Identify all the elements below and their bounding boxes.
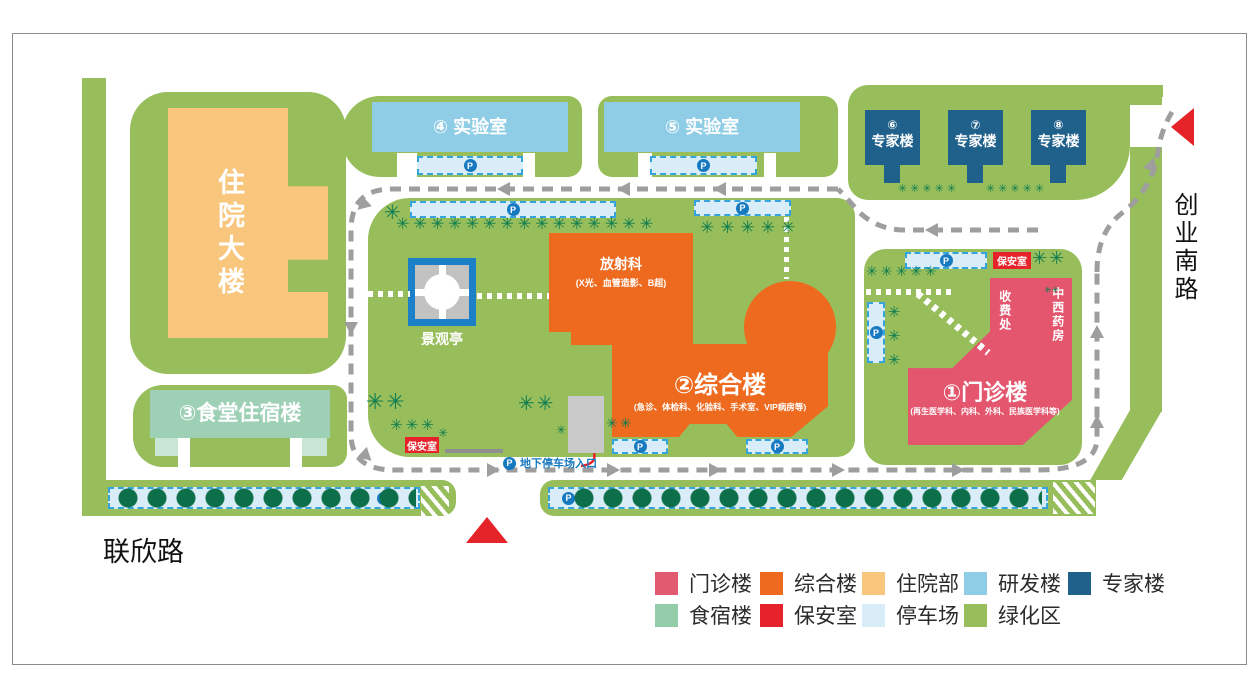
legend-item-security: 保安室: [760, 600, 857, 630]
legend-label: 综合楼: [794, 568, 857, 598]
underground-parking-entrance-label: P 地下停车场入口: [503, 455, 597, 471]
parking-strip-lab4: P: [417, 156, 523, 175]
palm-tree-row: ✳✳✳: [390, 418, 437, 433]
security-room-badge-south: 保安室: [405, 437, 439, 453]
canteen-leg-left: [155, 438, 178, 456]
parking-icon: P: [507, 203, 520, 216]
lab5-label: ⑤ 实验室: [604, 117, 800, 138]
comprehensive-label: ②综合楼: [620, 372, 820, 400]
palm-tree-row: ✳✳✳✳✳: [898, 184, 959, 195]
expert6-text: 专家楼: [865, 133, 920, 149]
legend-swatch: [655, 572, 678, 595]
comprehensive-sublabel: (急诊、体检科、化验科、手术室、VIP病房等): [620, 401, 820, 413]
parking-strip-central-bottomright: P: [746, 439, 808, 454]
legend-swatch: [862, 604, 885, 627]
legend-swatch: [655, 604, 678, 627]
legend-label: 保安室: [794, 600, 857, 630]
expert8-number: ⑧: [1031, 119, 1086, 133]
legend-swatch: [760, 604, 783, 627]
legend-item-outpatient: 门诊楼: [655, 568, 752, 598]
radiology-label: 放射科: [549, 256, 693, 272]
tree-row-south-right: [572, 486, 1042, 510]
expert6-label: ⑥ 专家楼: [865, 119, 920, 149]
outpatient-sublabel: (再生医学科、内科、外科、民族医学科等): [895, 406, 1075, 417]
expert7-number: ⑦: [948, 119, 1003, 133]
palm-tree-row: ✳✳✳✳✳: [986, 184, 1047, 195]
inpatient-label: 住院大楼: [213, 168, 244, 300]
south-entrance-arrow: [466, 517, 508, 543]
expert7-stem: [967, 165, 983, 183]
parking-icon: P: [771, 440, 784, 453]
legend-label: 食宿楼: [689, 600, 752, 630]
legend-swatch: [760, 572, 783, 595]
pavilion: [408, 258, 476, 326]
expert8-label: ⑧ 专家楼: [1031, 119, 1086, 149]
parking-strip-outpatient-left: P: [867, 302, 885, 363]
comprehensive-step: [571, 330, 693, 345]
legend-item-comprehensive: 综合楼: [760, 568, 857, 598]
underground-parking-ramp: [568, 396, 604, 453]
parking-icon: P: [736, 202, 749, 215]
palm-tree-row: ✳✳✳✳✳: [700, 219, 801, 236]
parking-icon: P: [870, 326, 883, 339]
expert8-text: 专家楼: [1031, 133, 1086, 149]
expert7-text: 专家楼: [948, 133, 1003, 149]
palm-tree-row: ✳✳: [366, 391, 407, 413]
palm-tree-row: ✳✳✳✳✳: [866, 264, 940, 278]
tree-row-south-left: [116, 486, 416, 510]
expert6-stem: [884, 165, 900, 183]
palm-tree-row: ✳✳: [1044, 286, 1059, 295]
curb-bar: [445, 449, 503, 453]
expert6-number: ⑥: [865, 119, 920, 133]
parking-icon: P: [464, 159, 477, 172]
pavilion-center-circle: [424, 274, 460, 310]
walkway-pavilion-right: [477, 293, 549, 299]
parking-strip-lab5: P: [650, 156, 757, 175]
palm-tree-row: ✳✳: [606, 416, 633, 430]
legend-item-inpatient: 住院部: [862, 568, 959, 598]
canteen-leg-right: [302, 438, 327, 456]
road-label-east: 创业南路: [1166, 192, 1201, 304]
parking-icon: P: [634, 440, 647, 453]
parking-icon: P: [697, 159, 710, 172]
crosswalk-hatch-south-right: [1053, 482, 1095, 514]
parking-strip-central-bottomleft: P: [612, 439, 668, 454]
legend-label: 住院部: [896, 568, 959, 598]
walkway-outpatient: [866, 289, 954, 295]
legend-swatch: [964, 572, 987, 595]
palm-tree-row: ✳✳✳✳✳✳✳✳✳✳✳✳✳✳✳: [396, 217, 657, 233]
outpatient-fee-label: 收费处: [997, 290, 1011, 332]
walkway-pavilion-left: [368, 291, 410, 297]
palm-tree: ✳: [438, 427, 448, 439]
radiology-sublabel: (X光、血管造影、B超): [549, 276, 693, 289]
security-room-badge-east: 保安室: [993, 252, 1031, 269]
palm-tree-column: ✳✳✳: [886, 303, 901, 375]
legend-swatch: [964, 604, 987, 627]
hospital-campus-map: 住院大楼 ④ 实验室 ⑤ 实验室 ⑥ 专家楼 ⑦ 专家楼 ⑧ 专家楼 ③食堂住宿…: [0, 0, 1257, 673]
east-entrance-arrow: [1171, 108, 1194, 146]
canteen-label: ③食堂住宿楼: [150, 402, 330, 426]
underground-parking-entrance-text: 地下停车场入口: [520, 455, 597, 471]
legend-swatch: [1068, 572, 1091, 595]
palm-tree-row: ✳✳: [518, 394, 556, 414]
lab4-label: ④ 实验室: [372, 117, 568, 138]
pavilion-label: 景观亭: [408, 331, 476, 347]
parking-strip-central-topright: P: [694, 200, 791, 216]
legend-label: 绿化区: [998, 600, 1061, 630]
expert8-stem: [1050, 165, 1066, 183]
legend-item-expert: 专家楼: [1068, 568, 1165, 598]
legend-item-green: 绿化区: [964, 600, 1061, 630]
crosswalk-hatch-south-left: [421, 486, 449, 516]
legend-swatch: [862, 572, 885, 595]
outpatient-label: ①门诊楼: [895, 380, 1075, 405]
parking-icon: P: [503, 457, 516, 470]
palm-tree: ✳: [556, 424, 566, 436]
expert7-label: ⑦ 专家楼: [948, 119, 1003, 149]
legend-label: 专家楼: [1102, 568, 1165, 598]
legend-label: 门诊楼: [689, 568, 752, 598]
legend-item-parking: 停车场: [862, 600, 959, 630]
legend-item-rd: 研发楼: [964, 568, 1061, 598]
parking-icon: P: [940, 254, 953, 267]
outpatient-pharmacy-label: 中西药房: [1050, 287, 1064, 343]
legend-label: 停车场: [896, 600, 959, 630]
legend-item-canteen: 食宿楼: [655, 600, 752, 630]
road-label-south: 联欣路: [103, 530, 184, 569]
legend-label: 研发楼: [998, 568, 1061, 598]
palm-tree-row: ✳✳: [1032, 249, 1066, 267]
